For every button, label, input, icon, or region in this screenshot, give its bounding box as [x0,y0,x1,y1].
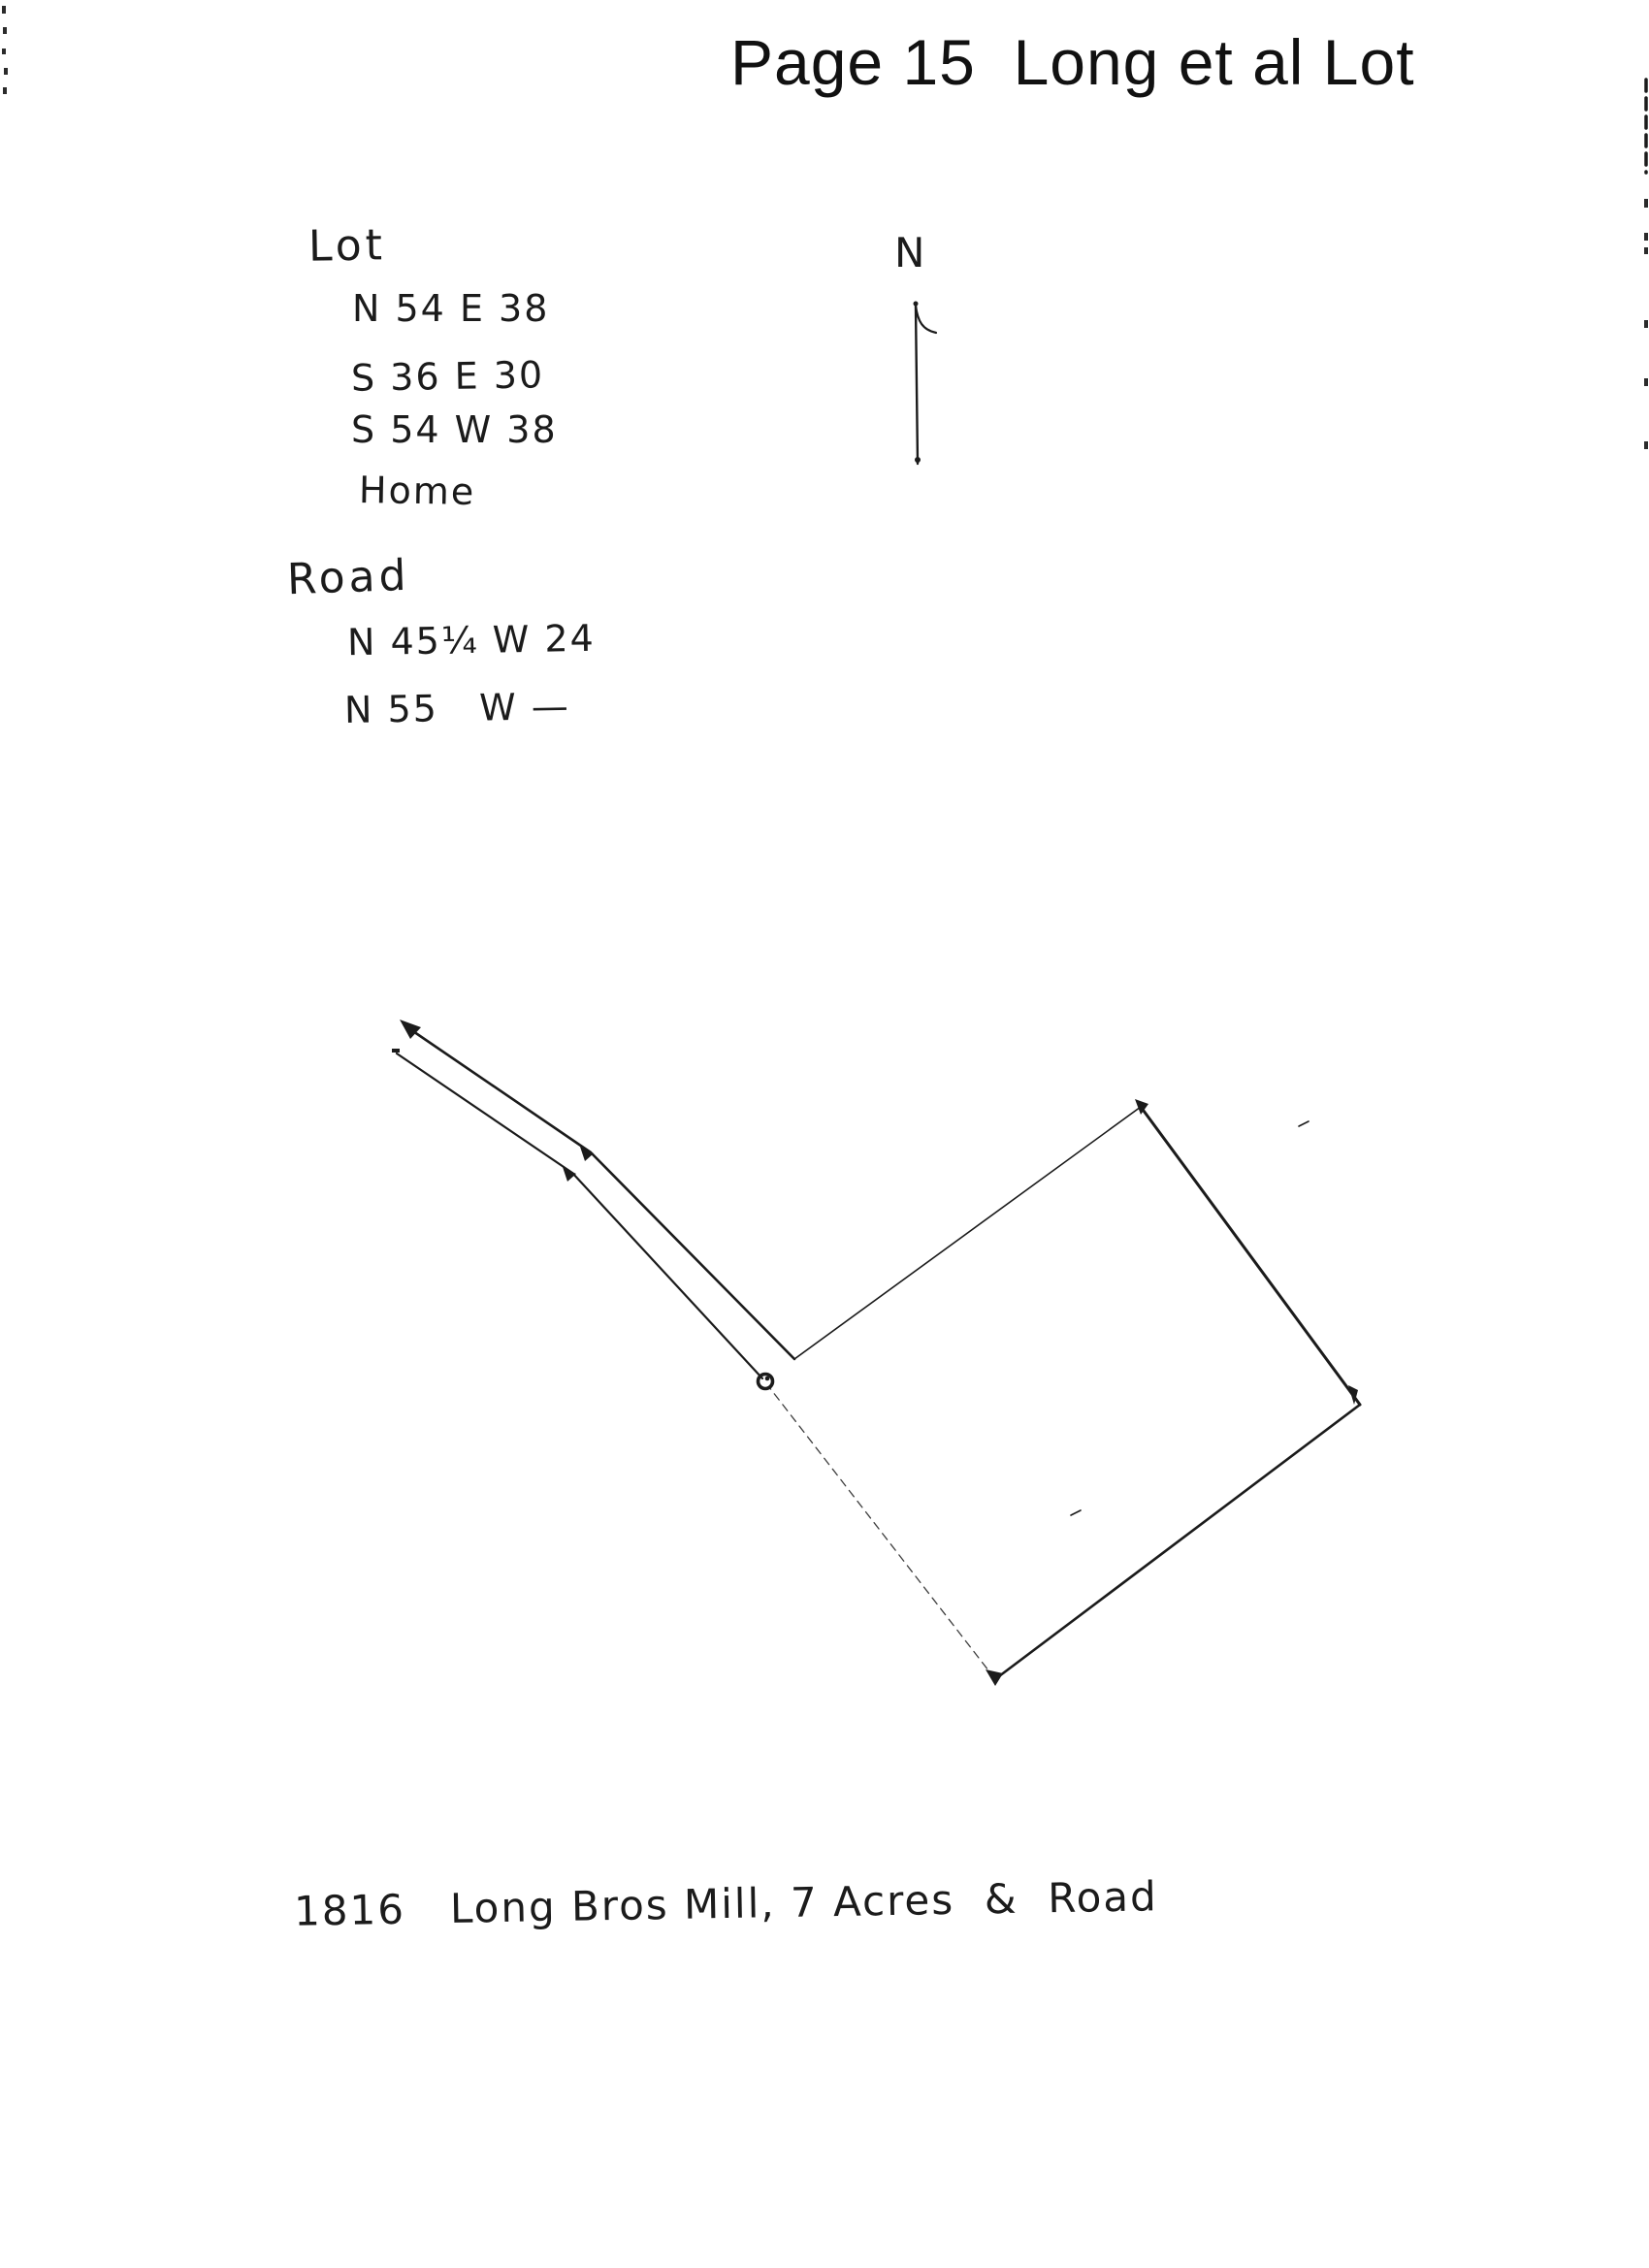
road-arrowhead-icon [400,1020,421,1039]
road-lower-line [392,1049,762,1378]
road-upper-line [400,1020,794,1359]
parcel-nw-edge [794,1107,1141,1359]
parcel-sw-edge [769,1387,995,1679]
lot-parcel-outline [769,1099,1360,1686]
scan-artifact-left-edge [2,6,8,94]
parcel-se-edge [995,1405,1360,1679]
corner-tick-icon [986,1669,1003,1686]
scanned-plat-page: Page 15 Long et al Lot Lot N 54 E 38 S 3… [0,0,1649,2268]
parcel-ne-edge [1141,1107,1360,1405]
survey-sketch [0,0,1649,2268]
road-bend-tick-icon [563,1167,576,1182]
scan-artifact-right-edge [1644,80,1648,449]
north-arrow [914,302,937,465]
scan-specks [1071,1121,1309,1515]
survey-point-marker [759,1375,773,1389]
